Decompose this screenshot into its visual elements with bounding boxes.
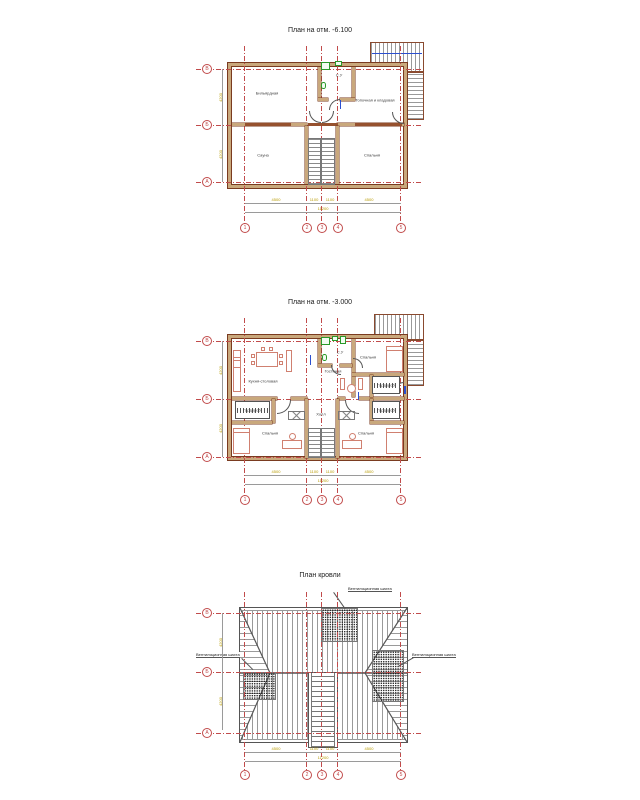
axis-bubble-col: 3 bbox=[317, 495, 327, 505]
interior-wall bbox=[340, 364, 352, 367]
room-label: С.У bbox=[337, 350, 344, 355]
armchair bbox=[340, 378, 345, 390]
axis-bubble-row: В bbox=[202, 336, 212, 346]
door-leaf bbox=[340, 100, 341, 109]
grid-axis-line bbox=[196, 733, 421, 734]
dimension-text: 11200 bbox=[318, 755, 329, 760]
room-label: Спальня bbox=[358, 431, 374, 436]
interior-wall bbox=[359, 397, 404, 400]
closet bbox=[288, 411, 305, 420]
chair bbox=[279, 361, 283, 365]
sink-icon bbox=[335, 61, 342, 66]
interior-wall bbox=[370, 421, 404, 424]
interior-wall bbox=[272, 399, 275, 423]
bed bbox=[386, 428, 403, 454]
axis-bubble-row: А bbox=[202, 452, 212, 462]
dimension-text: 4500 bbox=[272, 469, 281, 474]
grid-axis-line bbox=[400, 46, 401, 228]
dimension-text: 1100 bbox=[326, 746, 335, 751]
interior-wall bbox=[340, 98, 355, 101]
closet bbox=[338, 411, 355, 420]
exterior-stair-side bbox=[406, 340, 424, 386]
axis-bubble-col: 4 bbox=[333, 223, 343, 233]
axis-bubble-col: 2 bbox=[302, 223, 312, 233]
chair bbox=[251, 354, 255, 358]
exterior-stair-side bbox=[406, 72, 424, 120]
grid-axis-line bbox=[306, 592, 307, 775]
axis-bubble-col: 2 bbox=[302, 495, 312, 505]
bed bbox=[386, 346, 403, 372]
interior-wall bbox=[232, 397, 277, 400]
dimension-text: 1100 bbox=[310, 197, 319, 202]
dining-table bbox=[256, 352, 278, 367]
interior-wall bbox=[318, 364, 332, 367]
room-label: Бильярдная bbox=[256, 91, 279, 96]
toilet-icon bbox=[322, 354, 327, 361]
room-label: Гардероб bbox=[377, 383, 395, 388]
dimension-text: 4500 bbox=[365, 469, 374, 474]
interior-wall bbox=[352, 67, 355, 98]
interior-wall bbox=[232, 421, 272, 424]
room-label: Кухня-столовая bbox=[248, 379, 277, 384]
axis-bubble-col: 3 bbox=[317, 223, 327, 233]
stair-flight bbox=[321, 428, 335, 458]
dimension-line bbox=[222, 613, 223, 730]
dimension-text: 1100 bbox=[326, 469, 335, 474]
dimension-line bbox=[245, 484, 401, 485]
room-label: Гардероб bbox=[243, 408, 261, 413]
interior-wall bbox=[338, 397, 345, 400]
room-label: Гардероб bbox=[377, 408, 395, 413]
axis-bubble-col: 4 bbox=[333, 770, 343, 780]
annotation-text: Вентиляционная шахта bbox=[412, 652, 456, 658]
axis-bubble-col: 5 bbox=[396, 223, 406, 233]
room-label: Гостиная bbox=[325, 369, 342, 374]
grid-axis-line bbox=[321, 592, 322, 775]
grid-axis-line bbox=[196, 613, 421, 614]
axis-bubble-col: 5 bbox=[396, 495, 406, 505]
desk bbox=[282, 440, 302, 449]
stair-railing bbox=[372, 53, 422, 54]
grid-axis-line bbox=[400, 592, 401, 775]
axis-bubble-row: А bbox=[202, 177, 212, 187]
sink-icon bbox=[332, 336, 338, 341]
toilet-icon bbox=[321, 82, 326, 89]
axis-bubble-row: А bbox=[202, 728, 212, 738]
room-label: С.У bbox=[336, 73, 343, 78]
dimension-text: 4200 bbox=[218, 638, 223, 647]
desk bbox=[342, 440, 362, 449]
room-label: Спальня bbox=[364, 153, 380, 158]
dimension-text: 11200 bbox=[318, 206, 329, 211]
plan2-title: План на отм. -3.000 bbox=[288, 299, 352, 306]
dimension-line bbox=[245, 752, 401, 753]
axis-bubble-col: 4 bbox=[333, 495, 343, 505]
dimension-text: 1100 bbox=[310, 746, 319, 751]
chair bbox=[279, 354, 283, 358]
stair-flight bbox=[321, 138, 335, 185]
dimension-text: 4200 bbox=[218, 424, 223, 433]
room-label: Спальня bbox=[360, 355, 376, 360]
dimension-line bbox=[245, 475, 401, 476]
stair-shaft-wall bbox=[336, 126, 339, 184]
armchair bbox=[358, 378, 363, 390]
dimension-text: 1100 bbox=[326, 197, 335, 202]
chair bbox=[251, 361, 255, 365]
plan1-title: План на отм. -6.100 bbox=[288, 27, 352, 34]
axis-bubble-row: Б bbox=[202, 394, 212, 404]
kitchen-island bbox=[286, 350, 292, 372]
axis-bubble-row: Б bbox=[202, 120, 212, 130]
desk-chair bbox=[349, 433, 356, 440]
dimension-line bbox=[222, 69, 223, 182]
stair-shaft-wall bbox=[336, 399, 339, 458]
axis-bubble-row: Б bbox=[202, 667, 212, 677]
shower-icon bbox=[321, 337, 330, 345]
grid-axis-line bbox=[196, 69, 421, 70]
desk-chair bbox=[289, 433, 296, 440]
dimension-text: 4200 bbox=[218, 150, 223, 159]
axis-bubble-col: 2 bbox=[302, 770, 312, 780]
bed bbox=[233, 428, 250, 454]
stair-flight bbox=[308, 428, 321, 458]
dimension-text: 4500 bbox=[272, 197, 281, 202]
wall-beam bbox=[308, 123, 338, 126]
annotation-text: Вентиляционная шахта bbox=[196, 652, 240, 658]
axis-bubble-col: 1 bbox=[240, 223, 250, 233]
grid-axis-line bbox=[321, 46, 322, 228]
sink-unit bbox=[233, 360, 241, 368]
stairwell-strip bbox=[308, 672, 338, 748]
grid-axis-line bbox=[196, 341, 421, 342]
grid-axis-line bbox=[196, 672, 421, 673]
dimension-text: 4500 bbox=[365, 746, 374, 751]
coffee-table bbox=[347, 384, 356, 393]
axis-bubble-row: В bbox=[202, 608, 212, 618]
dimension-line bbox=[245, 761, 401, 762]
room-label: Сауна bbox=[257, 153, 269, 158]
grid-axis-line bbox=[244, 46, 245, 228]
door-leaf bbox=[310, 355, 311, 365]
dimension-text: 4200 bbox=[218, 366, 223, 375]
axis-bubble-col: 3 bbox=[317, 770, 327, 780]
wall-beam bbox=[245, 123, 291, 126]
dimension-text: 4500 bbox=[365, 197, 374, 202]
drawing-sheet: { "titles": { "plan1": "План на отм. -6.… bbox=[0, 0, 640, 800]
dimension-text: 11200 bbox=[318, 478, 329, 483]
grid-axis-line bbox=[244, 592, 245, 775]
door-leaf bbox=[404, 386, 406, 394]
dimension-line bbox=[245, 212, 401, 213]
axis-bubble-col: 1 bbox=[240, 495, 250, 505]
room-label: Спальня bbox=[262, 431, 278, 436]
dimension-line bbox=[245, 203, 401, 204]
wall-beam bbox=[355, 123, 402, 126]
dimension-text: 1100 bbox=[310, 469, 319, 474]
chair bbox=[269, 347, 273, 351]
room-label: Топочная и кладовая bbox=[355, 98, 394, 103]
annotation-text: Вентиляционная шахта bbox=[348, 586, 392, 592]
chair bbox=[261, 347, 265, 351]
dimension-text: 4200 bbox=[218, 93, 223, 102]
axis-bubble-row: В bbox=[202, 64, 212, 74]
axis-bubble-col: 5 bbox=[396, 770, 406, 780]
axis-bubble-col: 1 bbox=[240, 770, 250, 780]
dimension-text: 4500 bbox=[272, 746, 281, 751]
dimension-line bbox=[222, 341, 223, 457]
dimension-text: 4200 bbox=[218, 697, 223, 706]
washer-icon bbox=[340, 336, 346, 344]
grid-axis-line bbox=[321, 318, 322, 500]
stair-flight bbox=[308, 138, 321, 185]
grid-axis-line bbox=[337, 592, 338, 775]
interior-wall bbox=[318, 98, 328, 101]
vent-shaft-hatch bbox=[243, 672, 276, 700]
room-label: Холл bbox=[316, 412, 325, 417]
shower-icon bbox=[321, 62, 330, 70]
plan3-title: План кровли bbox=[299, 572, 340, 579]
door-leaf bbox=[358, 392, 359, 400]
stove bbox=[233, 350, 241, 358]
